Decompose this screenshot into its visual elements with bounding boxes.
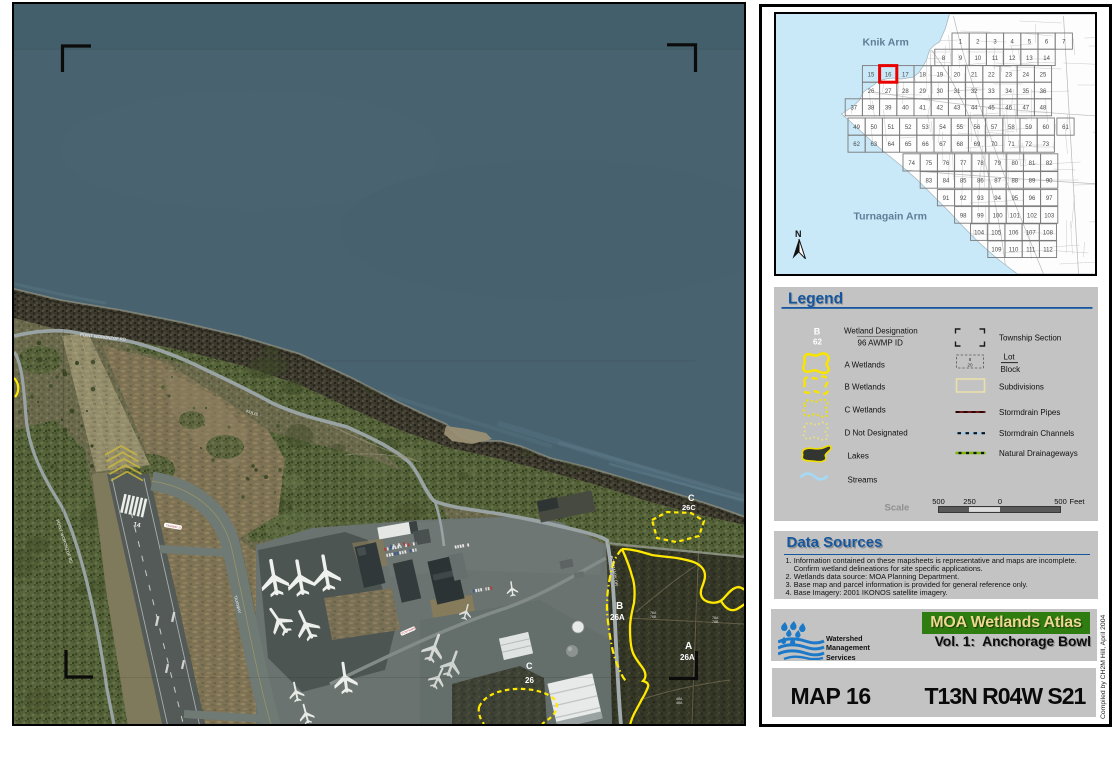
svg-text:Feet: Feet <box>1069 497 1085 506</box>
svg-text:78: 78 <box>977 161 984 167</box>
svg-text:26C: 26C <box>682 503 696 512</box>
svg-text:88: 88 <box>1011 178 1018 184</box>
svg-text:250: 250 <box>963 497 976 506</box>
svg-text:26A: 26A <box>610 613 625 622</box>
svg-text:103: 103 <box>1044 213 1055 219</box>
svg-text:90: 90 <box>1045 178 1052 184</box>
svg-text:61: 61 <box>1062 125 1069 131</box>
svg-text:112: 112 <box>1043 248 1053 254</box>
svg-text:102: 102 <box>1026 213 1037 219</box>
svg-text:30: 30 <box>936 89 943 95</box>
svg-text:Legend: Legend <box>788 290 843 307</box>
svg-text:D Not Designated: D Not Designated <box>844 428 907 437</box>
svg-text:18: 18 <box>919 72 926 78</box>
svg-text:500: 500 <box>932 497 945 506</box>
svg-text:66: 66 <box>922 142 929 148</box>
svg-text:70: 70 <box>990 142 997 148</box>
svg-text:95: 95 <box>1011 196 1018 202</box>
svg-text:N: N <box>795 229 802 239</box>
svg-text:76: 76 <box>942 161 949 167</box>
svg-text:111: 111 <box>1026 248 1036 254</box>
svg-text:62: 62 <box>853 142 860 148</box>
svg-text:64: 64 <box>887 142 894 148</box>
svg-text:26A: 26A <box>680 653 695 662</box>
svg-text:40: 40 <box>902 106 909 112</box>
svg-text:15: 15 <box>867 72 874 78</box>
svg-text:77: 77 <box>959 161 966 167</box>
svg-text:C: C <box>526 661 533 671</box>
svg-text:38: 38 <box>867 106 874 112</box>
svg-text:51: 51 <box>887 125 894 131</box>
svg-text:Wetland Designation: Wetland Designation <box>844 326 918 335</box>
svg-text:46: 46 <box>1005 106 1012 112</box>
svg-text:85: 85 <box>959 178 966 184</box>
svg-text:81: 81 <box>1028 161 1035 167</box>
svg-text:96 AWMP ID: 96 AWMP ID <box>857 338 903 347</box>
svg-text:74: 74 <box>908 161 915 167</box>
svg-text:72: 72 <box>1025 142 1032 148</box>
svg-text:49: 49 <box>853 125 860 131</box>
svg-text:36: 36 <box>1039 89 1046 95</box>
svg-text:21: 21 <box>970 72 977 78</box>
svg-text:Lakes: Lakes <box>847 451 868 460</box>
svg-text:69: 69 <box>973 142 980 148</box>
svg-text:82: 82 <box>1045 161 1052 167</box>
svg-text:80: 80 <box>1011 161 1018 167</box>
svg-text:Stormdrain Pipes: Stormdrain Pipes <box>999 408 1060 417</box>
svg-text:34: 34 <box>1005 89 1012 95</box>
svg-text:44: 44 <box>970 106 977 112</box>
svg-text:91: 91 <box>942 196 949 202</box>
svg-text:39: 39 <box>884 106 891 112</box>
svg-text:92: 92 <box>959 196 966 202</box>
svg-text:109: 109 <box>991 248 1002 254</box>
svg-text:Knik Arm: Knik Arm <box>862 37 908 49</box>
svg-text:26: 26 <box>867 89 874 95</box>
svg-text:A Wetlands: A Wetlands <box>844 360 884 369</box>
svg-text:57: 57 <box>990 125 997 131</box>
svg-text:101: 101 <box>1009 213 1020 219</box>
svg-text:99: 99 <box>977 213 984 219</box>
svg-text:Subdivisions: Subdivisions <box>999 382 1044 391</box>
svg-text:31: 31 <box>953 89 960 95</box>
svg-text:98: 98 <box>959 213 966 219</box>
svg-text:A: A <box>685 641 692 652</box>
svg-text:Natural Drainageways: Natural Drainageways <box>999 449 1078 458</box>
svg-text:26: 26 <box>525 676 534 685</box>
svg-text:17: 17 <box>902 72 909 78</box>
svg-text:43: 43 <box>953 106 960 112</box>
svg-text:16: 16 <box>884 72 891 78</box>
svg-text:59: 59 <box>1025 125 1032 131</box>
svg-text:63: 63 <box>870 142 877 148</box>
svg-text:B: B <box>813 326 820 336</box>
svg-text:100: 100 <box>992 213 1003 219</box>
svg-text:58: 58 <box>1008 125 1015 131</box>
svg-text:Township Section: Township Section <box>999 333 1061 342</box>
svg-text:53: 53 <box>922 125 929 131</box>
svg-text:67: 67 <box>939 142 946 148</box>
svg-text:35: 35 <box>1022 89 1029 95</box>
svg-text:Scale: Scale <box>884 502 909 513</box>
svg-text:108: 108 <box>1042 231 1053 237</box>
svg-text:Lot: Lot <box>1003 352 1015 361</box>
svg-text:96: 96 <box>1028 196 1035 202</box>
svg-text:12: 12 <box>1008 56 1015 62</box>
svg-text:55: 55 <box>956 125 963 131</box>
svg-text:54: 54 <box>939 125 946 131</box>
svg-text:62: 62 <box>813 337 822 346</box>
svg-text:C: C <box>688 493 695 503</box>
svg-text:27: 27 <box>884 89 891 95</box>
svg-text:20: 20 <box>967 362 973 367</box>
svg-text:42: 42 <box>936 106 943 112</box>
svg-text:110: 110 <box>1008 248 1018 254</box>
svg-text:97: 97 <box>1045 196 1052 202</box>
svg-text:Stormdrain Channels: Stormdrain Channels <box>999 429 1074 438</box>
svg-text:105: 105 <box>991 231 1002 237</box>
svg-text:37: 37 <box>850 106 857 112</box>
svg-text:60: 60 <box>1042 125 1049 131</box>
svg-text:20: 20 <box>953 72 960 78</box>
svg-text:84: 84 <box>942 178 949 184</box>
svg-text:22: 22 <box>988 72 995 78</box>
svg-text:33: 33 <box>988 89 995 95</box>
svg-text:87: 87 <box>994 178 1001 184</box>
svg-text:29: 29 <box>919 89 926 95</box>
svg-text:41: 41 <box>919 106 926 112</box>
svg-text:13: 13 <box>1026 56 1033 62</box>
svg-text:104: 104 <box>974 231 985 237</box>
svg-text:11: 11 <box>991 56 998 62</box>
svg-text:32: 32 <box>970 89 977 95</box>
svg-text:500: 500 <box>1054 497 1067 506</box>
svg-text:65: 65 <box>904 142 911 148</box>
svg-text:B Wetlands: B Wetlands <box>844 382 885 391</box>
svg-text:14: 14 <box>1043 56 1050 62</box>
svg-text:19: 19 <box>936 72 943 78</box>
svg-text:52: 52 <box>904 125 911 131</box>
svg-text:76B: 76B <box>650 615 657 619</box>
svg-text:93: 93 <box>977 196 984 202</box>
svg-text:24: 24 <box>1022 72 1029 78</box>
svg-text:48: 48 <box>1039 106 1046 112</box>
svg-text:Streams: Streams <box>847 475 877 484</box>
svg-text:B: B <box>616 601 623 612</box>
svg-text:Turnagain Arm: Turnagain Arm <box>853 211 927 223</box>
svg-text:106: 106 <box>1008 231 1019 237</box>
svg-text:25: 25 <box>1039 72 1046 78</box>
svg-text:C Wetlands: C Wetlands <box>844 405 885 414</box>
svg-text:47: 47 <box>1022 106 1029 112</box>
svg-text:0: 0 <box>997 497 1001 506</box>
svg-text:23: 23 <box>1005 72 1012 78</box>
svg-text:Block: Block <box>1000 365 1021 374</box>
svg-text:48A: 48A <box>676 701 683 705</box>
svg-text:50: 50 <box>870 125 877 131</box>
svg-text:89: 89 <box>1028 178 1035 184</box>
svg-text:71: 71 <box>1008 142 1015 148</box>
svg-text:56: 56 <box>973 125 980 131</box>
svg-text:94: 94 <box>994 196 1001 202</box>
svg-text:45: 45 <box>988 106 995 112</box>
svg-text:10: 10 <box>974 56 981 62</box>
svg-text:75: 75 <box>925 161 932 167</box>
svg-text:107: 107 <box>1025 231 1036 237</box>
svg-text:78B: 78B <box>712 620 719 624</box>
svg-text:86: 86 <box>977 178 984 184</box>
svg-text:68: 68 <box>956 142 963 148</box>
svg-text:79: 79 <box>994 161 1001 167</box>
svg-text:83: 83 <box>925 178 932 184</box>
svg-text:73: 73 <box>1042 142 1049 148</box>
svg-text:28: 28 <box>902 89 909 95</box>
svg-text:8: 8 <box>968 357 971 362</box>
